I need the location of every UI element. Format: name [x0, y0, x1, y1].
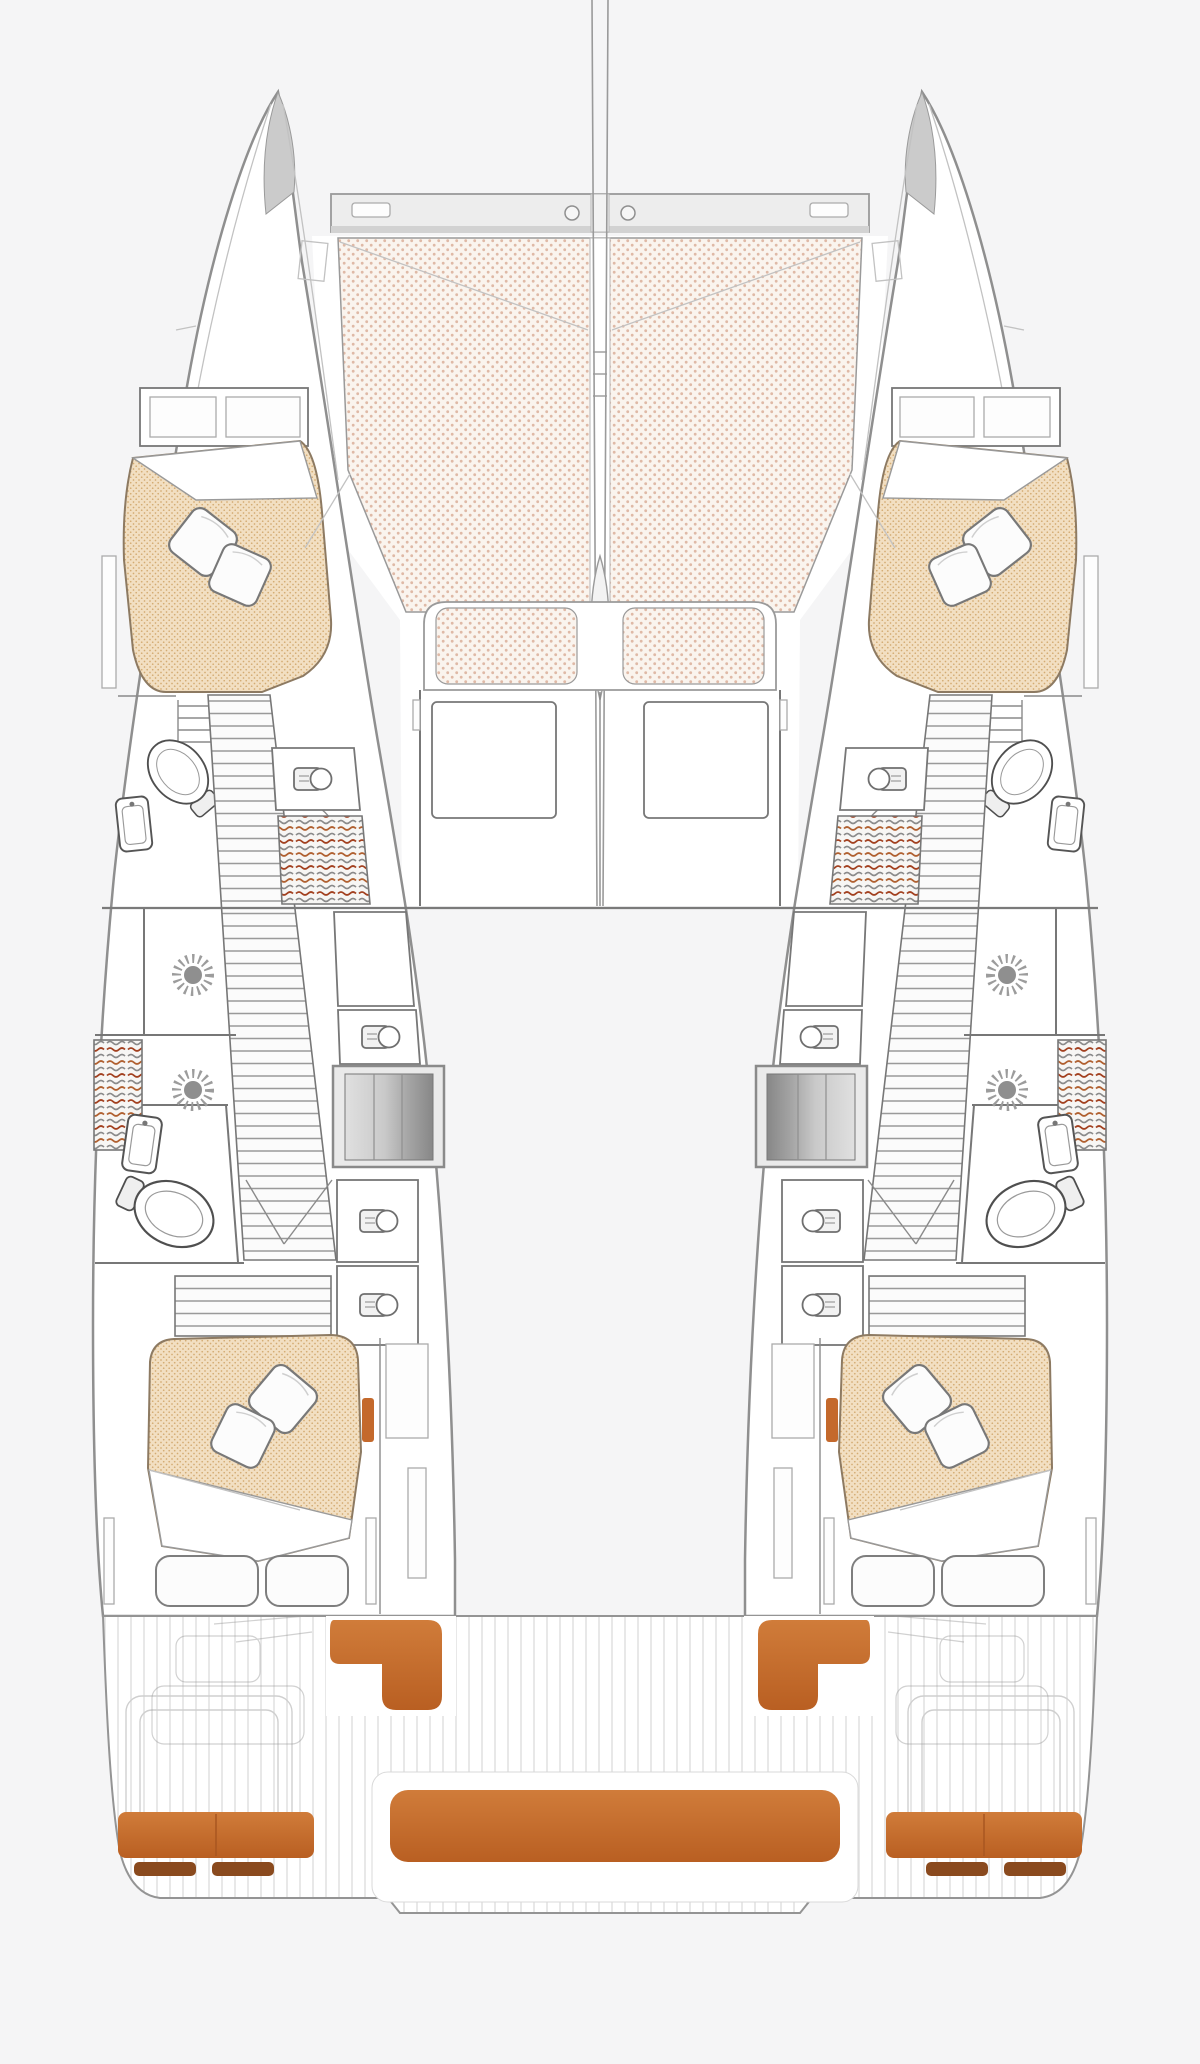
- beam-fitting: [810, 203, 848, 217]
- sink-icon: [360, 1210, 398, 1232]
- storage-locker: [334, 912, 414, 1006]
- headboard-locker: [150, 397, 216, 437]
- side-rail: [104, 1518, 114, 1604]
- foot-pillow: [266, 1556, 348, 1606]
- screenshot-root: [0, 0, 1200, 2064]
- cabin-locker: [386, 1344, 428, 1438]
- washbasin-icon: [121, 1114, 162, 1174]
- bench-tab: [780, 700, 787, 730]
- cabin-entry-steps: [175, 1276, 331, 1336]
- footrest: [134, 1862, 196, 1876]
- washbasin-icon: [115, 796, 153, 852]
- forward-crossbeam: [331, 194, 869, 233]
- sink-icon: [360, 1294, 398, 1316]
- bench-backrest: [432, 702, 556, 818]
- side-rail: [366, 1518, 376, 1604]
- sink-icon: [294, 768, 332, 790]
- headboard-locker: [226, 397, 300, 437]
- sink-icon: [362, 1026, 400, 1048]
- aft-bench-group: [372, 1772, 858, 1902]
- footrest: [212, 1862, 274, 1876]
- seat-cushion: [436, 608, 577, 684]
- beam-ring: [565, 206, 579, 220]
- cabin-door-panel: [408, 1468, 426, 1578]
- catamaran-floor-plan: [0, 0, 1200, 2064]
- seat-cushion: [623, 608, 764, 684]
- foot-pillow: [156, 1556, 258, 1606]
- door-handle: [362, 1398, 374, 1442]
- saloon-stairs: [333, 1066, 444, 1167]
- beam-ring: [621, 206, 635, 220]
- aft-bench-seat: [390, 1790, 840, 1862]
- side-shelf: [102, 556, 116, 688]
- wardrobe-hanging-clothes: [278, 816, 370, 904]
- bench-backrest: [644, 702, 768, 818]
- beam-fitting: [352, 203, 390, 217]
- bench-tab: [413, 700, 420, 730]
